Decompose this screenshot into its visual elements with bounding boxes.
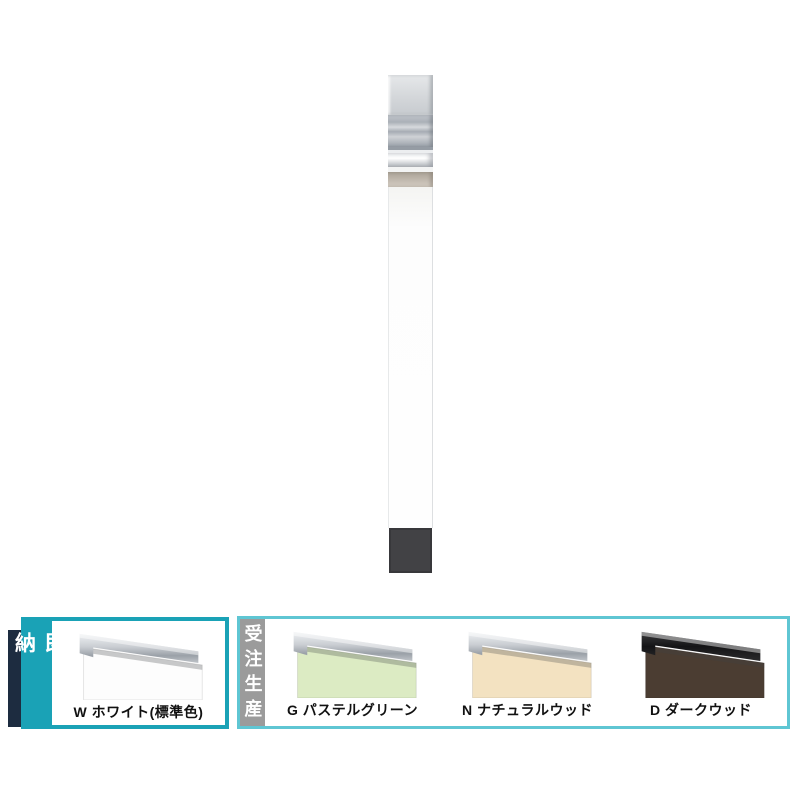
swatch-pastel-green: G パステルグリーン [287, 626, 418, 720]
pole-base-block [389, 528, 432, 573]
swatch-natural-wood: N ナチュラルウッド [462, 626, 593, 720]
swatch-white: W ホワイト(標準色) [74, 628, 204, 722]
swatch-white-image [75, 628, 203, 700]
pole-hook-bracket [388, 115, 433, 147]
immediate-swatch-area: W ホワイト(標準色) [52, 621, 225, 725]
swatch-dark-wood-image [637, 626, 765, 698]
swatch-dark-wood: D ダークウッド [637, 626, 765, 720]
made-to-order-tag-label: 受注生産 [240, 619, 266, 726]
swatch-label-natural-wood: N ナチュラルウッド [462, 700, 593, 720]
swatch-pastel-green-image [289, 626, 417, 698]
product-catalog-image: 即納 W ホワイト(標準色) 受注生産 [0, 0, 800, 800]
pole-tan-band [388, 172, 433, 187]
pole-top-cap [388, 75, 433, 115]
immediate-delivery-tag: 即納 [25, 621, 52, 725]
swatch-label-white: W ホワイト(標準色) [74, 702, 204, 722]
swatch-natural-wood-image [464, 626, 592, 698]
order-swatch-area: G パステルグリーン N ナチュラルウッド D ダークウッド [265, 619, 787, 726]
section-made-to-order: 受注生産 G パステルグリーン N ナチュラルウッド [237, 616, 790, 729]
product-pole [388, 75, 433, 573]
made-to-order-tag: 受注生産 [240, 619, 265, 726]
section-immediate-delivery: 即納 W ホワイト(標準色) [21, 617, 229, 729]
swatch-label-pastel-green: G パステルグリーン [287, 700, 418, 720]
pole-silver-band [388, 153, 433, 167]
swatch-label-dark-wood: D ダークウッド [650, 700, 752, 720]
pole-body [388, 187, 433, 528]
